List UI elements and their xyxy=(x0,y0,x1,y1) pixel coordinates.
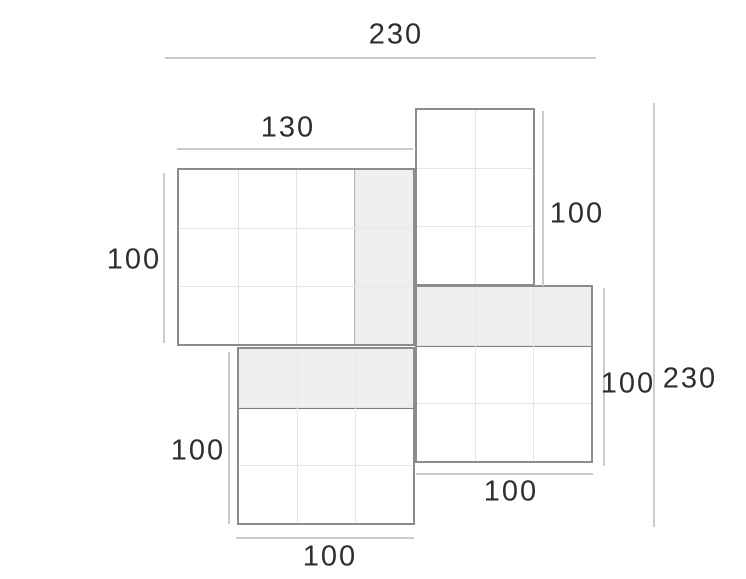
left-panel-grid-column-line xyxy=(238,170,239,344)
bottom-left-panel-grid-row-line xyxy=(239,407,413,408)
dim-total-width-line xyxy=(165,57,596,59)
left-panel-shaded-region xyxy=(354,170,413,344)
dim-bottom-left-width-label: 100 xyxy=(303,543,357,572)
top-right-panel-grid-column-line xyxy=(475,110,476,284)
dim-total-height-line xyxy=(653,103,655,527)
dim-bottom-left-height-line xyxy=(228,352,230,524)
dim-left-panel-width-label: 130 xyxy=(261,114,315,143)
right-panel xyxy=(415,285,593,463)
bottom-left-panel-shaded-region xyxy=(239,349,413,409)
dim-left-panel-height-line xyxy=(163,173,165,343)
dim-bottom-left-width-line xyxy=(236,537,414,539)
right-panel-grid-row-line xyxy=(417,403,591,404)
diagram-canvas: 230130100100100230100100100 xyxy=(0,0,746,579)
dim-total-height-label: 230 xyxy=(663,365,717,394)
left-panel-grid-column-line xyxy=(355,170,356,344)
dim-right-panel-width-label: 100 xyxy=(484,478,538,507)
dim-left-panel-width-line xyxy=(177,148,413,150)
dim-right-panel-width-line xyxy=(416,473,593,475)
left-panel-grid-row-line xyxy=(179,286,413,287)
dim-total-width-label: 230 xyxy=(369,21,423,50)
right-panel-grid-column-line xyxy=(533,287,534,461)
right-panel-grid-row-line xyxy=(417,345,591,346)
right-panel-shaded-region xyxy=(417,287,591,347)
bottom-left-panel-grid-column-line xyxy=(297,349,298,523)
right-panel-grid-column-line xyxy=(475,287,476,461)
dim-bottom-left-height-label: 100 xyxy=(171,437,225,466)
dim-right-panel-height-label: 100 xyxy=(601,370,655,399)
top-right-panel-grid-row-line xyxy=(417,168,533,169)
top-right-panel-grid-row-line xyxy=(417,226,533,227)
dim-left-panel-height-label: 100 xyxy=(107,246,161,275)
dim-top-right-height-label: 100 xyxy=(550,200,604,229)
dim-top-right-height-line xyxy=(542,111,544,286)
top-right-panel xyxy=(415,108,535,286)
left-panel-grid-row-line xyxy=(179,228,413,229)
bottom-left-panel xyxy=(237,347,415,525)
bottom-left-panel-grid-row-line xyxy=(239,465,413,466)
bottom-left-panel-grid-column-line xyxy=(355,349,356,523)
left-panel-grid-column-line xyxy=(296,170,297,344)
left-panel xyxy=(177,168,415,346)
